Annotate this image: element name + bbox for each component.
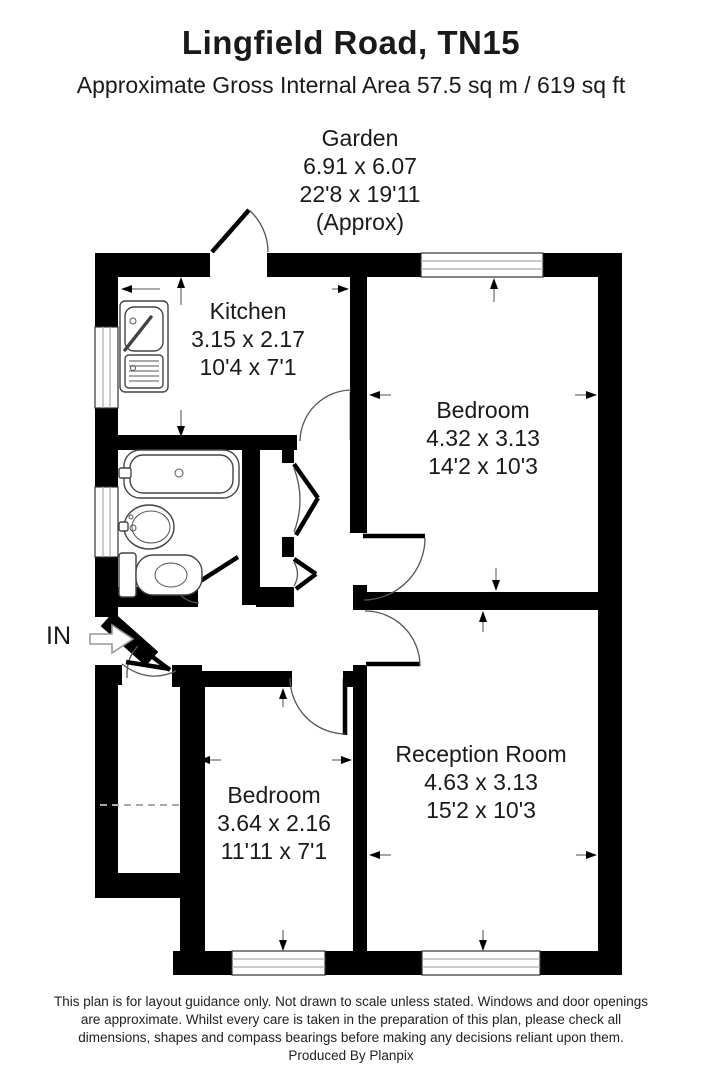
bedroom-bottom-name: Bedroom — [174, 781, 374, 809]
reception-name: Reception Room — [356, 740, 606, 768]
disclaimer-footer: This plan is for layout guidance only. N… — [0, 993, 702, 1065]
garden-dims-imperial: 22'8 x 19'11 — [210, 180, 510, 208]
garden-label-block: Garden 6.91 x 6.07 22'8 x 19'11 (Approx) — [210, 124, 510, 236]
kitchen-dims-imperial: 10'4 x 7'1 — [148, 353, 348, 381]
bedroom-top-name: Bedroom — [383, 396, 583, 424]
producer-credit: Produced By Planpix — [0, 1047, 702, 1065]
bedroom-top-dims-imperial: 14'2 x 10'3 — [383, 452, 583, 480]
bedroom-top-dims-metric: 4.32 x 3.13 — [383, 424, 583, 452]
page-subtitle: Approximate Gross Internal Area 57.5 sq … — [0, 72, 702, 99]
bedroom-bottom-dims-metric: 3.64 x 2.16 — [174, 809, 374, 837]
page-title: Lingfield Road, TN15 — [0, 24, 702, 62]
window-bedroom-top — [421, 253, 543, 277]
window-reception — [422, 951, 540, 975]
kitchen-dims-metric: 3.15 x 2.17 — [148, 325, 348, 353]
disclaimer-line-2: are approximate. Whilst every care is ta… — [0, 1011, 702, 1029]
room-label-bedroom-top: Bedroom 4.32 x 3.13 14'2 x 10'3 — [383, 396, 583, 480]
entry-in-label: IN — [46, 622, 80, 651]
room-label-bedroom-bottom: Bedroom 3.64 x 2.16 11'11 x 7'1 — [174, 781, 374, 865]
garden-dims-metric: 6.91 x 6.07 — [210, 152, 510, 180]
window-bedroom-bottom — [232, 951, 325, 975]
bedroom-top-door — [363, 536, 425, 600]
reception-dims-imperial: 15'2 x 10'3 — [356, 796, 606, 824]
kitchen-name: Kitchen — [148, 297, 348, 325]
reception-door — [365, 611, 420, 666]
bathtub — [119, 450, 239, 498]
floorplan-page: Lingfield Road, TN15 Approximate Gross I… — [0, 0, 702, 1080]
room-label-reception: Reception Room 4.63 x 3.13 15'2 x 10'3 — [356, 740, 606, 824]
storage-door — [122, 662, 176, 676]
garden-name: Garden — [210, 124, 510, 152]
kitchen-door — [300, 390, 352, 441]
disclaimer-line-3: dimensions, shapes and compass bearings … — [0, 1029, 702, 1047]
reception-dims-metric: 4.63 x 3.13 — [356, 768, 606, 796]
bedroom-bottom-door — [290, 678, 345, 735]
bedroom-bottom-dims-imperial: 11'11 x 7'1 — [174, 837, 374, 865]
window-kitchen-left — [95, 327, 118, 408]
toilet — [119, 553, 202, 597]
room-label-kitchen: Kitchen 3.15 x 2.17 10'4 x 7'1 — [148, 297, 348, 381]
disclaimer-line-1: This plan is for layout guidance only. N… — [0, 993, 702, 1011]
basin — [119, 505, 174, 549]
garden-approx-note: (Approx) — [210, 208, 510, 236]
window-bathroom-left — [95, 487, 118, 557]
closet-bifold-doors — [294, 464, 318, 589]
